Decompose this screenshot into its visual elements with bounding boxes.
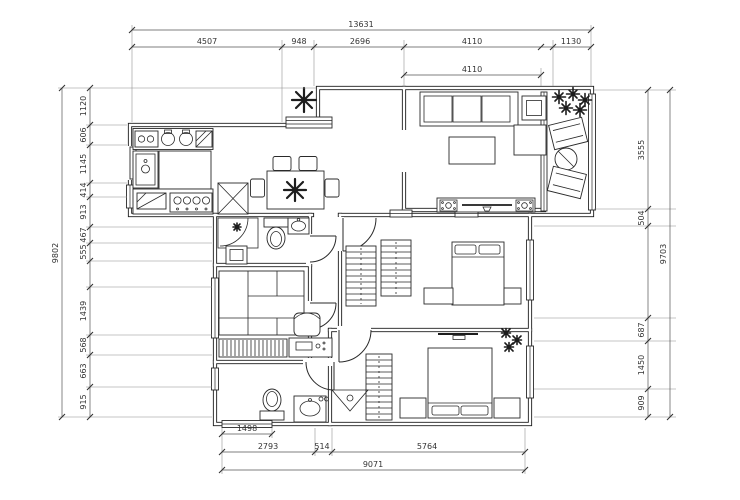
dimensions-bottom: 1498 2793 514 5764 9071: [219, 424, 528, 474]
dim-label: 504: [637, 210, 646, 225]
dim-label: 13631: [348, 20, 373, 29]
refrigerator-icon: [218, 183, 248, 214]
dim-label: 568: [79, 337, 88, 352]
balcony-table: [555, 148, 577, 170]
bed: [428, 348, 492, 418]
window-bedroom2-right: [527, 346, 534, 398]
dim-label: 1498: [237, 424, 257, 433]
side-table: [522, 96, 546, 120]
nightstand: [504, 288, 521, 304]
dim-label: 4110: [462, 37, 482, 46]
dim-label: 5764: [417, 442, 437, 451]
basin-icon: [294, 396, 326, 422]
dining-area: [218, 157, 339, 215]
dim-label: 913: [79, 204, 88, 219]
tv-stand: [437, 198, 535, 212]
bench: [424, 288, 453, 304]
dim-label: 555: [79, 244, 88, 259]
shower-icon: [218, 218, 258, 248]
dim-label: 663: [79, 363, 88, 378]
stove-icon: [170, 193, 212, 212]
dim-label: 3555: [637, 140, 646, 160]
dim-label: 4507: [197, 37, 217, 46]
floor-plan-page: 13631 4507 948 2696 4110 1130 4110 9802 …: [0, 0, 740, 500]
toilet-icon: [264, 218, 288, 249]
tv-wall-mount: [438, 334, 478, 340]
dim-label: 9071: [363, 460, 383, 469]
dim-label: 467: [79, 227, 88, 242]
dim-label: 915: [79, 394, 88, 409]
coffee-table: [449, 137, 495, 164]
dining-chair: [273, 157, 291, 171]
window-balcony-right: [589, 94, 596, 210]
desk-chair: [294, 313, 320, 336]
kitchen: [133, 129, 213, 215]
lounge-chair: [547, 166, 586, 198]
dim-label: 9703: [659, 244, 668, 264]
basin-icon: [288, 218, 309, 234]
dim-label: 514: [314, 442, 329, 451]
storage-room: [219, 271, 332, 357]
balcony-plants: [553, 88, 592, 117]
window-bedroom1-right: [527, 240, 534, 300]
bedroom-2: [332, 329, 522, 421]
living-room: [420, 92, 546, 212]
dim-label: 2696: [350, 37, 370, 46]
dining-chair: [251, 179, 265, 197]
dim-label: 4110: [462, 65, 482, 74]
nightstand: [494, 398, 520, 418]
counter-hatch: [196, 131, 212, 147]
bed: [452, 242, 504, 305]
plant-icon: [292, 88, 316, 112]
kitchen-sink-icon: [135, 131, 158, 147]
dim-label: 606: [79, 127, 88, 142]
shower-head-icon: [233, 223, 241, 231]
dining-chair: [325, 179, 339, 197]
hall-console: [286, 88, 332, 128]
plant-icon: [284, 179, 306, 201]
dim-label: 1439: [79, 301, 88, 321]
counter-hatch2: [137, 193, 166, 209]
kitchen-island: [159, 151, 211, 189]
wardrobe: [346, 246, 376, 306]
dim-label: 687: [637, 322, 646, 337]
dim-label: 909: [637, 395, 646, 410]
bedroom-1: [346, 240, 521, 306]
window-kitchen-left: [127, 185, 134, 208]
desk: [289, 338, 332, 357]
dim-label: 1130: [561, 37, 581, 46]
toilet-icon: [260, 389, 284, 420]
wall-niche-left: [390, 210, 412, 217]
dim-label: 948: [291, 37, 306, 46]
floor-plan-drawing: 13631 4507 948 2696 4110 1130 4110 9802 …: [0, 0, 740, 500]
dim-label: 1145: [79, 154, 88, 174]
closet-grid: [219, 271, 304, 335]
dining-chair: [299, 157, 317, 171]
washing-machine-icon: [226, 246, 247, 264]
wardrobe: [381, 240, 411, 296]
dim-label: 1120: [79, 96, 88, 116]
dim-label: 9802: [51, 243, 60, 263]
bathroom-2: [260, 389, 329, 422]
lounge-chair: [549, 117, 588, 149]
bathroom-1: [218, 218, 309, 264]
wardrobe: [366, 354, 392, 420]
nightstand: [400, 398, 426, 418]
corner-seat: [514, 125, 546, 155]
window-bath2-left: [212, 368, 219, 390]
kitchen-side-unit: [133, 151, 158, 188]
corner-desk: [332, 390, 368, 411]
dim-label: 1450: [637, 355, 646, 375]
window-storage-left: [212, 278, 219, 338]
shoe-shelf: [219, 339, 287, 357]
dim-label: 2793: [258, 442, 278, 451]
balcony: [547, 88, 591, 199]
sofa: [420, 92, 518, 126]
dim-label: 414: [79, 182, 88, 197]
